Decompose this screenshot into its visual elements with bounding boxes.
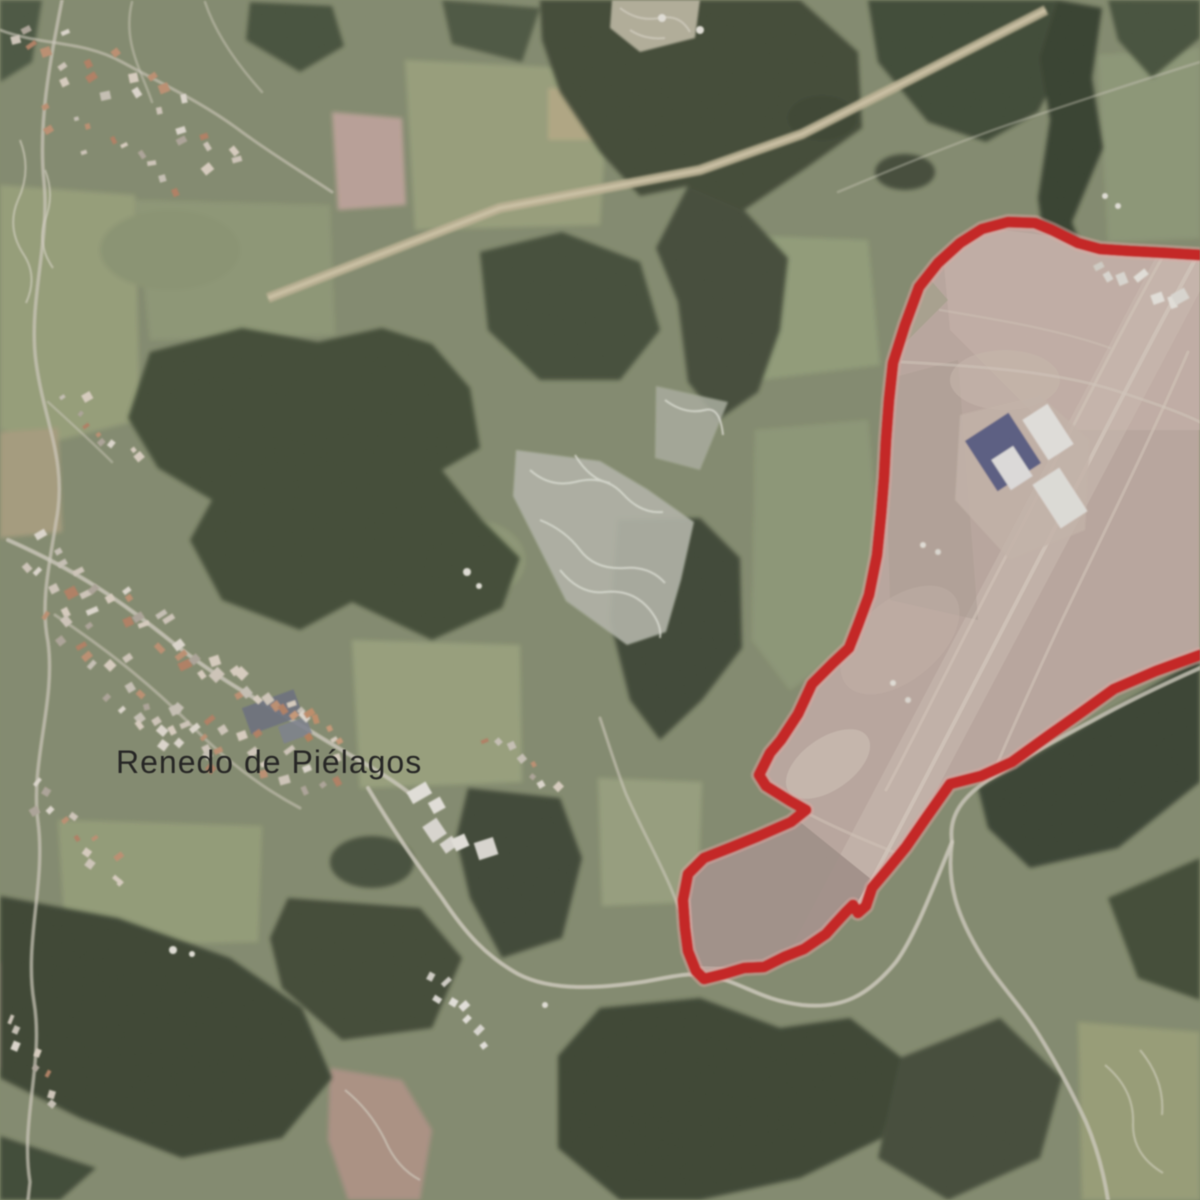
photo-grain-overlay (0, 0, 1200, 1200)
satellite-image: Renedo de Piélagos (0, 0, 1200, 1200)
satellite-map: Renedo de Piélagos (0, 0, 1200, 1200)
